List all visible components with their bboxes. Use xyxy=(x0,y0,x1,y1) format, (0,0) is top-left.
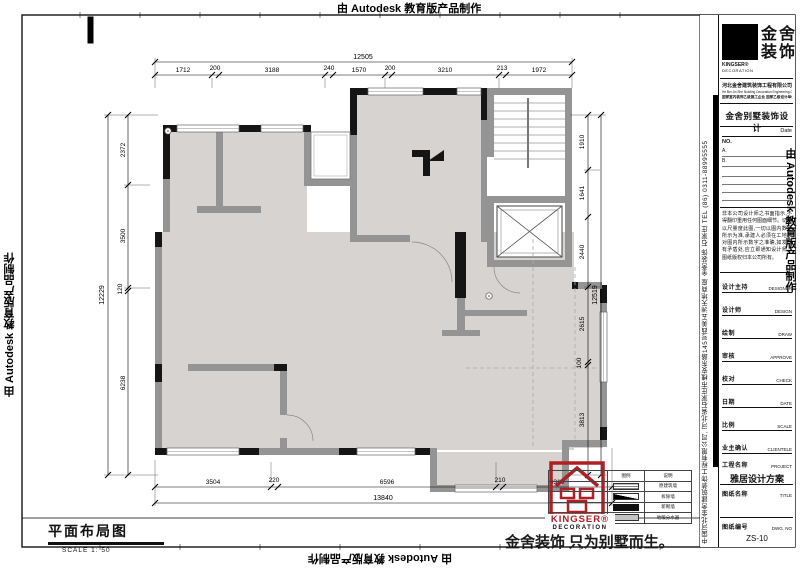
elevator xyxy=(497,206,562,257)
brand-cn-block: 金舍 装饰 xyxy=(761,26,797,62)
drawing-title-block: 平面布局图 SCALE 1: 50 xyxy=(48,521,164,554)
date-label: Date xyxy=(722,128,792,137)
legend-symbol-existing-wall xyxy=(613,483,639,490)
company-name: 河北金舍建筑装饰工程有限公司 xyxy=(722,82,792,89)
panel-divider xyxy=(720,517,793,518)
legend-symbol-manifold xyxy=(613,514,639,521)
brand-en-line2: DECORATION xyxy=(722,68,766,73)
watermark-panel: 由 Autodesk 教育版产品制作 xyxy=(782,148,798,323)
field-draw: 绘制DRAW xyxy=(722,325,792,339)
svg-text:1910: 1910 xyxy=(579,134,586,149)
legend-row: 拆除墙 xyxy=(549,492,692,503)
dim-bottom-total: 13840 xyxy=(373,495,393,502)
floor-areas xyxy=(158,95,603,485)
legend-header-desc: 说明 xyxy=(645,471,692,482)
svg-text:200: 200 xyxy=(210,65,221,72)
dim-right-total: 12519 xyxy=(592,285,599,305)
svg-text:2615: 2615 xyxy=(579,316,586,331)
drawing-scale: SCALE 1: 50 xyxy=(62,547,164,554)
svg-text:1972: 1972 xyxy=(532,67,547,74)
svg-text:3188: 3188 xyxy=(265,67,280,74)
cad-sheet: 12505 1712 200 3188 240 1570 200 3210 21… xyxy=(0,0,800,573)
field-date: 日期DATE xyxy=(722,394,792,408)
company-qualification: 国家室内装饰乙级施工企业 国家乙级设计单位 xyxy=(722,95,792,100)
svg-text:6238: 6238 xyxy=(120,375,127,390)
svg-text:240: 240 xyxy=(324,65,335,72)
svg-text:100: 100 xyxy=(576,357,583,368)
dwg-no-value: ZS-10 xyxy=(722,534,792,543)
panel-divider xyxy=(720,126,793,127)
panel-inner-border xyxy=(718,15,719,547)
svg-text:3813: 3813 xyxy=(579,412,586,427)
svg-text:2440: 2440 xyxy=(579,244,586,259)
company-address-vertical: 中国河北金舍建筑装饰工程有限公司, 河北省石家庄市槐安东路145号西美五洲天地商… xyxy=(701,18,713,544)
svg-text:2372: 2372 xyxy=(120,142,127,157)
no-label: NO. xyxy=(722,139,792,145)
dim-top-total: 12505 xyxy=(353,54,373,61)
field-scale: 比例SCALE xyxy=(722,417,792,431)
title-underline xyxy=(48,542,164,545)
legend-row: 新砌墙 xyxy=(549,502,692,513)
svg-text:213: 213 xyxy=(497,65,508,72)
panel-divider xyxy=(720,103,793,104)
field-approve: 审核APPROVE xyxy=(722,348,792,362)
field-title: 图纸名称TITLE xyxy=(722,486,792,499)
legend-symbol-demolish-wall xyxy=(613,493,639,500)
panel-divider xyxy=(720,78,793,79)
legend-row: 原建筑墙 xyxy=(549,481,692,492)
svg-text:200: 200 xyxy=(385,65,396,72)
legend-symbol-new-wall xyxy=(613,504,639,511)
light-well xyxy=(311,132,350,179)
legend-header-symbol: 图例 xyxy=(608,471,645,482)
brand-cn-line2: 装饰 xyxy=(761,44,797,62)
svg-text:220: 220 xyxy=(269,477,280,484)
watermark-top: 由 Autodesk 教育版产品制作 xyxy=(337,0,481,16)
kingser-brand-text: KINGSER® xyxy=(545,514,615,525)
watermark-bottom: 由 Autodesk 教育版产品制作 xyxy=(300,551,460,567)
svg-text:120: 120 xyxy=(117,283,124,294)
drawing-title: 平面布局图 xyxy=(48,521,164,541)
kingser-black-square-icon xyxy=(722,24,758,60)
dim-left-total: 12229 xyxy=(99,285,106,305)
company-name-en: He Bei Jin She Building Decoration Engin… xyxy=(722,90,792,94)
kingser-logo-wordmark: KINGSER® DECORATION xyxy=(545,514,615,531)
svg-text:210: 210 xyxy=(495,477,506,484)
svg-text:1570: 1570 xyxy=(352,67,367,74)
watermark-left: 由 Autodesk 教育版产品制作 xyxy=(2,222,18,397)
field-check: 校对CHECK xyxy=(722,371,792,385)
slogan-text: 金舍装饰 只为别墅而生。 xyxy=(505,531,674,552)
svg-text:3504: 3504 xyxy=(206,479,221,486)
field-dwg-no: 图纸编号DWG. NO xyxy=(722,519,792,532)
brand-cn-line1: 金舍 xyxy=(761,26,797,44)
svg-text:1641: 1641 xyxy=(579,185,586,200)
field-project: 工程名称PROJECT xyxy=(722,457,792,470)
field-client-confirm: 业主确认CLIENTELE xyxy=(722,440,792,454)
svg-text:3210: 3210 xyxy=(438,67,453,74)
panel-divider xyxy=(720,484,793,485)
svg-text:1712: 1712 xyxy=(176,67,191,74)
svg-text:6596: 6596 xyxy=(380,479,395,486)
stairs xyxy=(494,98,565,168)
svg-text:3500: 3500 xyxy=(120,228,127,243)
